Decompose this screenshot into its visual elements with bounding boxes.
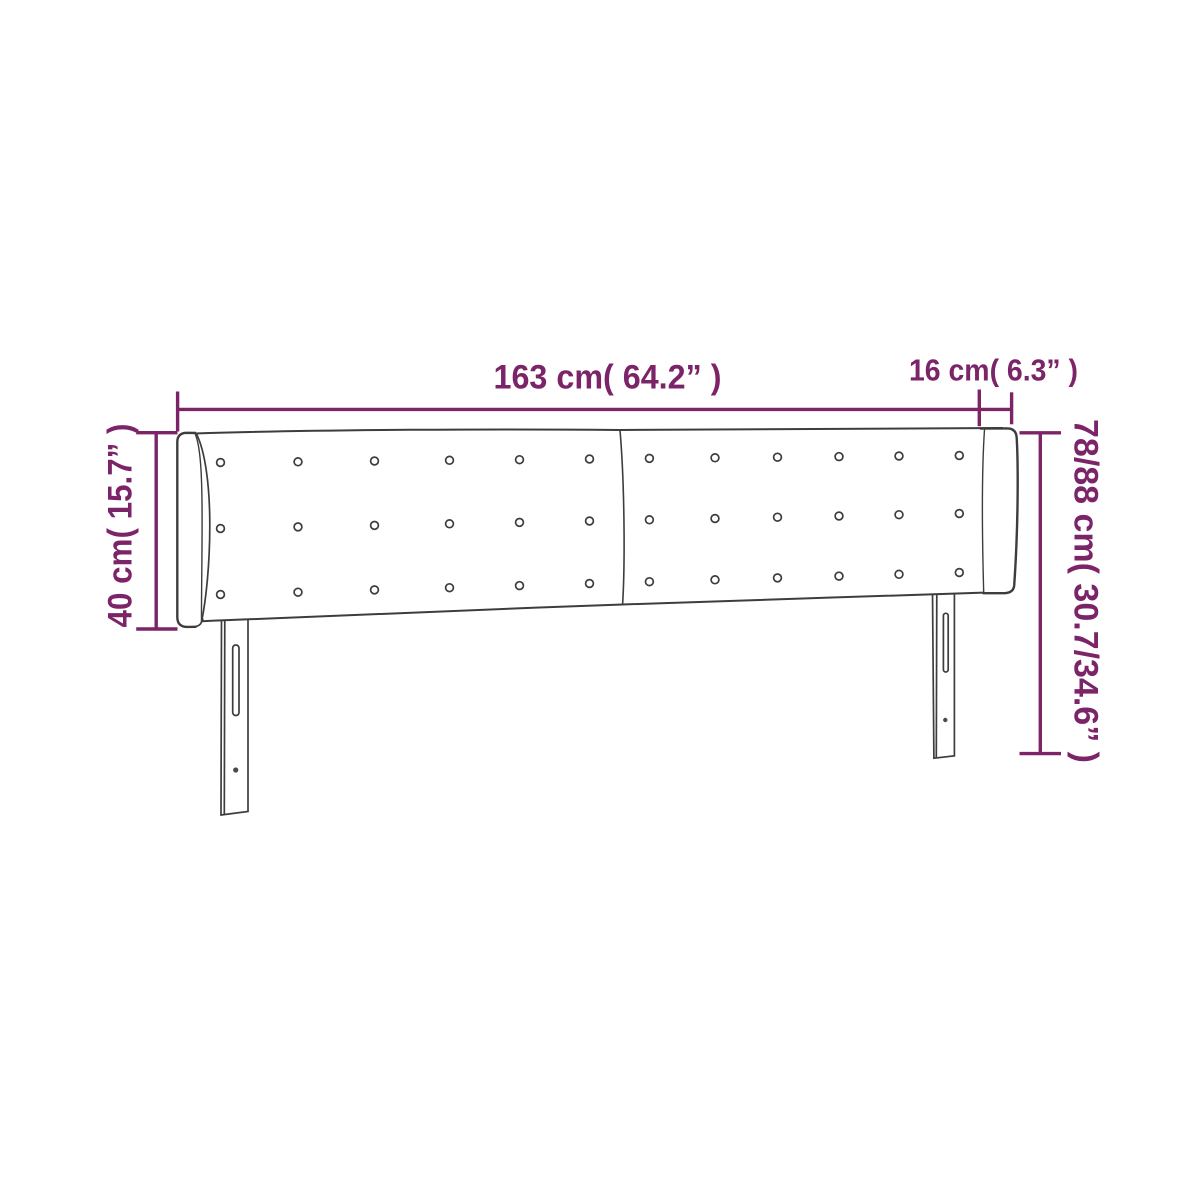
svg-text:78/88 cm( 30.7/34.6” ): 78/88 cm( 30.7/34.6” ) [1067, 419, 1105, 763]
svg-text:40 cm( 15.7” ): 40 cm( 15.7” ) [102, 424, 140, 628]
svg-text:16 cm( 6.3” ): 16 cm( 6.3” ) [909, 354, 1078, 388]
svg-text:163 cm( 64.2” ): 163 cm( 64.2” ) [494, 358, 722, 396]
